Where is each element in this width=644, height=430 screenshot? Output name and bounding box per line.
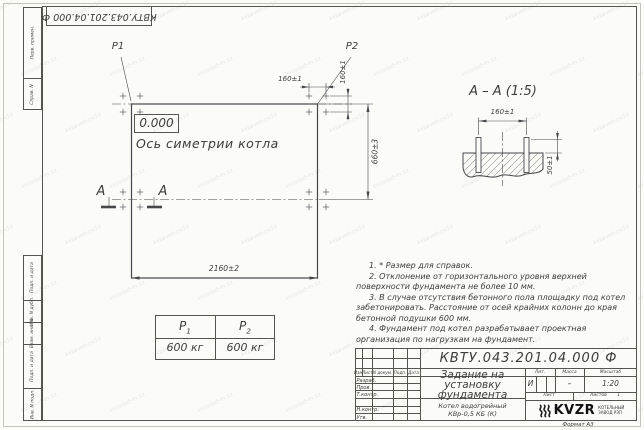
logo-sub-2: ЗАВОД РЭП (598, 411, 624, 415)
row-nkontr: Н.контр. (357, 407, 379, 413)
section-view-title: А – А (1:5) (453, 84, 553, 99)
scale-label: Масштаб (584, 370, 637, 375)
col-podp: Подп. (393, 370, 407, 375)
row-tkontr: Т.контр. (357, 392, 379, 398)
format-label: Формат А3 (543, 422, 613, 428)
manufacturer-logo-cell: KVZR КОТЕЛЬНЫЙ ЗАВОД РЭП (525, 400, 637, 421)
title-line-3: фундамента (420, 389, 525, 401)
product-line-2: КВр-0,5 КБ (К) (420, 410, 525, 418)
axis-of-symmetry-label: Ось симетрии котла (136, 136, 279, 151)
dim-section-bolt-spacing: 160±1 (478, 108, 527, 116)
dim-bolt-horizontal: 160±1 (274, 75, 306, 83)
sheets-cell: Листов 1 (573, 393, 637, 398)
section-view (436, 118, 579, 193)
row-razrab: Разраб. (357, 378, 377, 384)
col-list: Лист (362, 370, 372, 375)
lit-value: И (525, 379, 536, 388)
dim-section-protrusion: 50±1 (546, 145, 554, 185)
drawing-sheet: kvzavod-nv.kzkvzavod-nv.kzkvzavod-nv.kzk… (0, 0, 644, 430)
row-utv: Утв. (357, 415, 368, 421)
row-prov: Пров. (357, 385, 372, 391)
sheet-label: Лист (525, 393, 573, 398)
product-line-1: Котел водогрейный (420, 402, 525, 410)
kvzr-logo-icon (538, 404, 551, 418)
load-point-p2-label: P2 (340, 41, 364, 52)
note-4: 4. Фундамент под котел разрабатывает про… (356, 324, 632, 345)
logo-text: KVZR (554, 403, 596, 418)
scale-value: 1:20 (584, 379, 637, 388)
dim-bolt-vertical: 160±1 (339, 56, 347, 88)
col-data: Дата (407, 370, 420, 375)
sheets-value: 1 (617, 393, 620, 398)
sheets-label: Листов (590, 393, 607, 398)
mass-label: Масса (555, 370, 584, 375)
section-letter-right: А (155, 184, 171, 199)
dim-width-2160: 2160±2 (181, 264, 267, 273)
load-point-p1-label: P1 (106, 41, 130, 52)
dim-rows-660: 660±3 (371, 132, 380, 172)
col-ndoc: N докум. (372, 370, 393, 375)
lit-label: Лит. (525, 370, 555, 375)
technical-notes: 1. * Размер для справок. 2. Отклонение о… (356, 261, 632, 345)
elevation-label: 0.000 (134, 116, 179, 130)
load-table-header-p1: P1 (155, 319, 215, 335)
mass-value: – (555, 379, 584, 388)
load-table-value-p2: 600 кг (215, 341, 275, 354)
title-block-doc-number: КВТУ.043.201.04.000 Ф (420, 351, 637, 366)
note-2: 2. Отклонение от горизонтального уровня … (356, 272, 632, 293)
plan-view (101, 57, 373, 280)
load-table-value-p1: 600 кг (155, 341, 215, 354)
load-table-header-p2: P2 (215, 319, 275, 335)
section-letter-left: А (93, 184, 109, 199)
note-3: 3. В случае отсутствия бетонного пола пл… (356, 293, 632, 325)
note-1: 1. * Размер для справок. (356, 261, 632, 272)
